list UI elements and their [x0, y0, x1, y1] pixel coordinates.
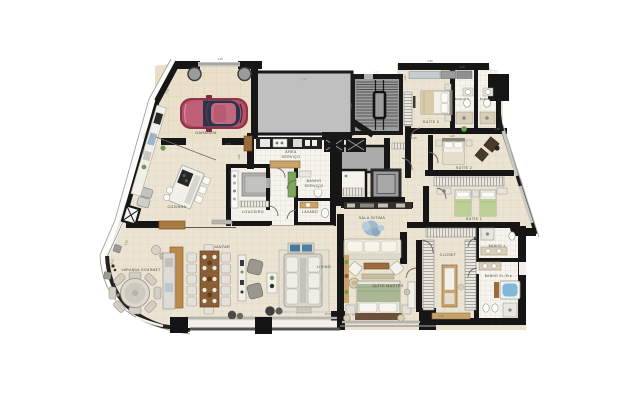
- svg-text:JANTAR: JANTAR: [214, 245, 230, 249]
- svg-text:3,95: 3,95: [427, 59, 433, 63]
- svg-text:SERVIÇO: SERVIÇO: [282, 155, 301, 159]
- svg-text:1,35: 1,35: [494, 127, 500, 131]
- svg-text:4,75: 4,75: [225, 142, 231, 146]
- svg-text:CLOSET: CLOSET: [440, 253, 457, 257]
- svg-text:BANHO: BANHO: [307, 179, 322, 183]
- svg-text:VARANDA GOURMET: VARANDA GOURMET: [121, 268, 160, 272]
- svg-text:SERVIÇO: SERVIÇO: [305, 184, 324, 188]
- svg-text:SUÍTE 3: SUÍTE 3: [423, 120, 439, 124]
- svg-text:BANHO Sr./Sra.: BANHO Sr./Sra.: [485, 274, 513, 278]
- svg-text:6,35: 6,35: [301, 77, 307, 81]
- svg-text:ÁREA: ÁREA: [285, 150, 297, 154]
- svg-text:GARAGEM: GARAGEM: [195, 131, 216, 135]
- svg-text:COZINHA: COZINHA: [168, 205, 187, 209]
- svg-text:1,90: 1,90: [237, 154, 241, 160]
- svg-text:SALA ÍNTIMA: SALA ÍNTIMA: [359, 216, 386, 220]
- svg-text:1,26: 1,26: [459, 65, 465, 69]
- svg-text:LIVING: LIVING: [317, 265, 331, 269]
- svg-text:BANHO 1: BANHO 1: [489, 244, 506, 248]
- svg-text:2,35: 2,35: [349, 103, 353, 109]
- svg-text:SUÍTE 1: SUÍTE 1: [466, 217, 482, 221]
- svg-text:SUÍTE MASTER: SUÍTE MASTER: [372, 284, 403, 288]
- svg-text:4,35: 4,35: [217, 57, 223, 61]
- svg-text:BANHO 3: BANHO 3: [455, 97, 469, 101]
- svg-text:1,26: 1,26: [449, 134, 455, 138]
- svg-text:1,20: 1,20: [411, 136, 417, 140]
- svg-text:1,26: 1,26: [438, 314, 444, 318]
- svg-text:4,46: 4,46: [352, 313, 358, 317]
- svg-text:BANHO 2: BANHO 2: [480, 97, 494, 101]
- svg-text:LOUCEIRO: LOUCEIRO: [242, 210, 264, 214]
- svg-text:LAVABO: LAVABO: [302, 210, 318, 214]
- svg-text:3,16: 3,16: [373, 70, 379, 74]
- svg-text:10,60: 10,60: [325, 312, 332, 316]
- svg-text:1,20: 1,20: [403, 75, 407, 81]
- svg-text:SUÍTE 2: SUÍTE 2: [456, 166, 472, 170]
